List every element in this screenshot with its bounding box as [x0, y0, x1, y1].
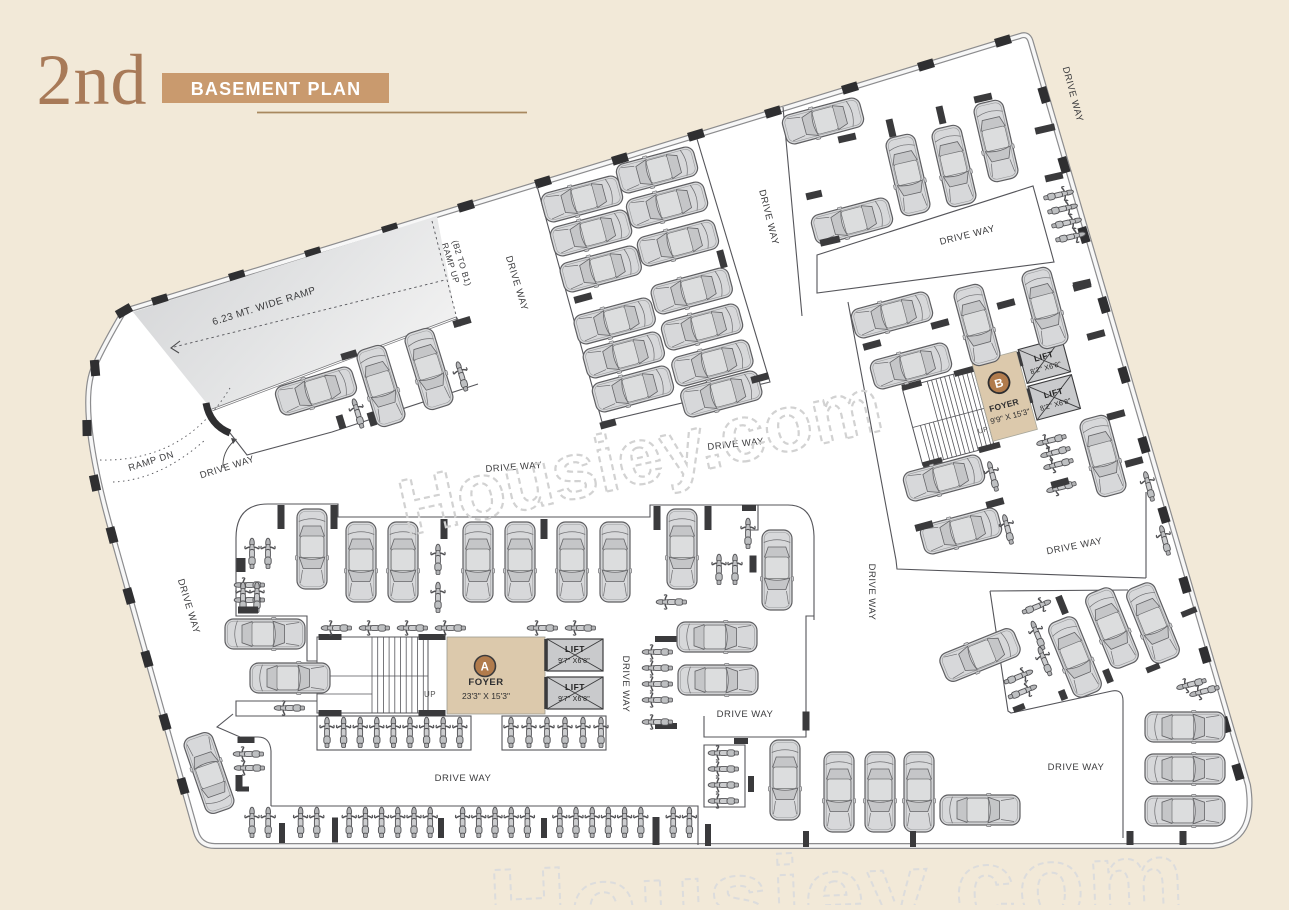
svg-text:9'7" X6'8": 9'7" X6'8" — [558, 696, 590, 703]
svg-text:BASEMENT PLAN: BASEMENT PLAN — [191, 79, 362, 99]
svg-text:LIFT: LIFT — [565, 644, 585, 654]
svg-text:FOYER: FOYER — [468, 677, 503, 688]
svg-text:23'3" X 15'3": 23'3" X 15'3" — [462, 691, 510, 701]
svg-text:DRIVE WAY: DRIVE WAY — [866, 564, 877, 621]
svg-text:DRIVE WAY: DRIVE WAY — [435, 773, 492, 784]
svg-text:LIFT: LIFT — [565, 682, 585, 692]
svg-text:2nd: 2nd — [37, 40, 148, 120]
svg-text:DRIVE WAY: DRIVE WAY — [620, 656, 631, 713]
svg-text:DRIVE WAY: DRIVE WAY — [717, 709, 774, 720]
svg-text:DRIVE WAY: DRIVE WAY — [1048, 762, 1105, 773]
svg-text:UP: UP — [424, 690, 436, 699]
svg-text:A: A — [481, 662, 490, 674]
svg-text:9'7" X6'8": 9'7" X6'8" — [558, 658, 590, 665]
